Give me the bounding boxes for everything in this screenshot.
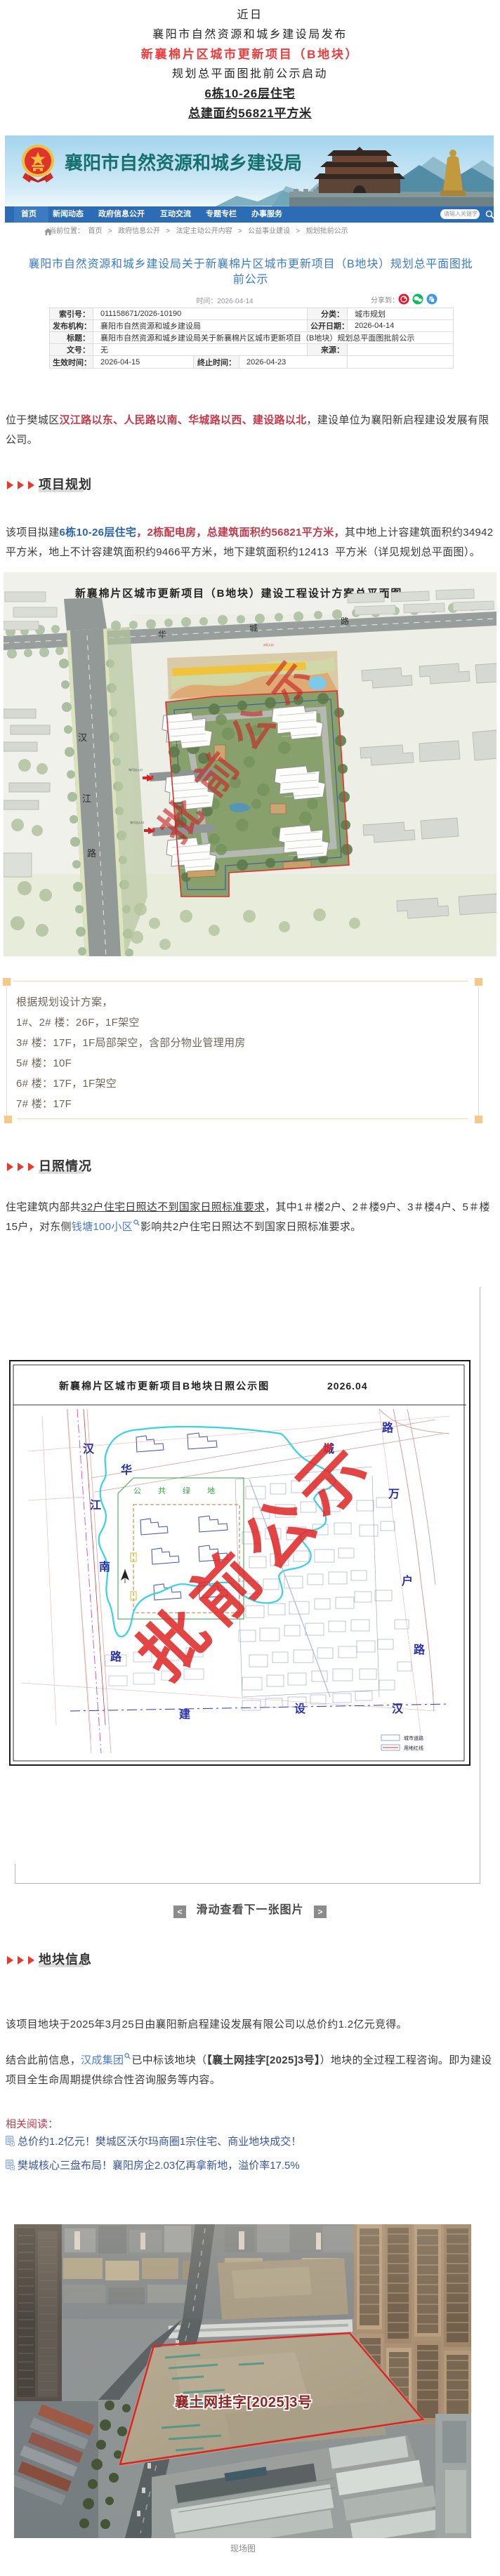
svg-text:建: 建: [179, 1708, 190, 1721]
svg-text:2026.04: 2026.04: [327, 1380, 368, 1392]
svg-text:公共绿地: 公共绿地: [133, 1486, 232, 1495]
svg-text:A号入口: A号入口: [263, 642, 274, 647]
svg-text:路: 路: [110, 1650, 122, 1663]
svg-text:南: 南: [99, 1560, 110, 1573]
svg-text:城市道路: 城市道路: [404, 1735, 423, 1741]
svg-text:新襄棉片区城市更新项目B地块日照公示图: 新襄棉片区城市更新项目B地块日照公示图: [59, 1380, 270, 1392]
svg-text:汉: 汉: [392, 1702, 404, 1715]
svg-text:汉: 汉: [78, 732, 87, 743]
svg-text:江: 江: [82, 793, 91, 804]
svg-text:万: 万: [388, 1488, 400, 1500]
svg-text:用地红线: 用地红线: [404, 1745, 423, 1751]
svg-text:路: 路: [341, 616, 350, 627]
svg-text:户: 户: [402, 1574, 413, 1587]
svg-text:华: 华: [158, 630, 167, 640]
svg-text:路: 路: [87, 848, 96, 859]
svg-text:路: 路: [382, 1421, 394, 1434]
svg-text:江: 江: [90, 1499, 101, 1512]
svg-text:路: 路: [414, 1643, 426, 1656]
svg-text:襄阳市自然资源和城乡建设局: 襄阳市自然资源和城乡建设局: [64, 152, 302, 173]
svg-text:设: 设: [294, 1703, 306, 1715]
svg-text:车行出入口: 车行出入口: [129, 767, 143, 772]
svg-text:城: 城: [249, 623, 258, 634]
svg-text:车行出入口: 车行出入口: [130, 820, 144, 824]
svg-text:华: 华: [121, 1463, 132, 1477]
svg-text:汉: 汉: [83, 1442, 95, 1455]
